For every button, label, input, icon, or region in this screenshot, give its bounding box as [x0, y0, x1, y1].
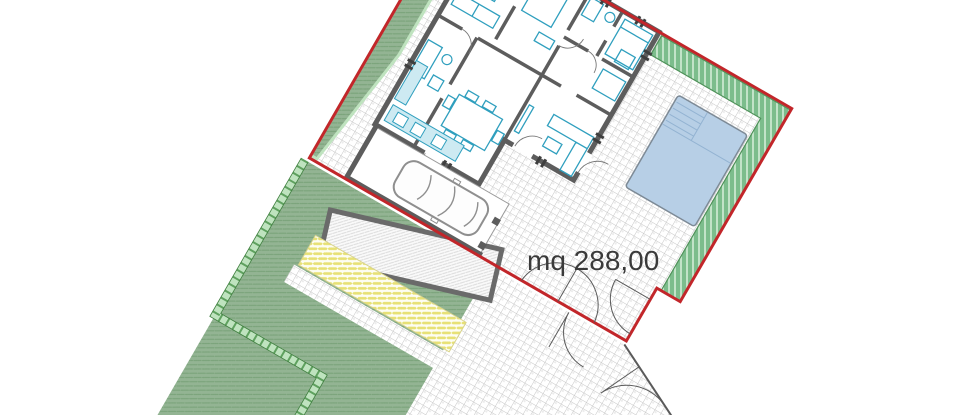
- floor-plan-page: mq 288,00: [0, 0, 960, 415]
- area-label: mq 288,00: [527, 245, 659, 276]
- site-plan-drawing: mq 288,00: [0, 0, 960, 415]
- rotated-plan-group: [135, 0, 876, 415]
